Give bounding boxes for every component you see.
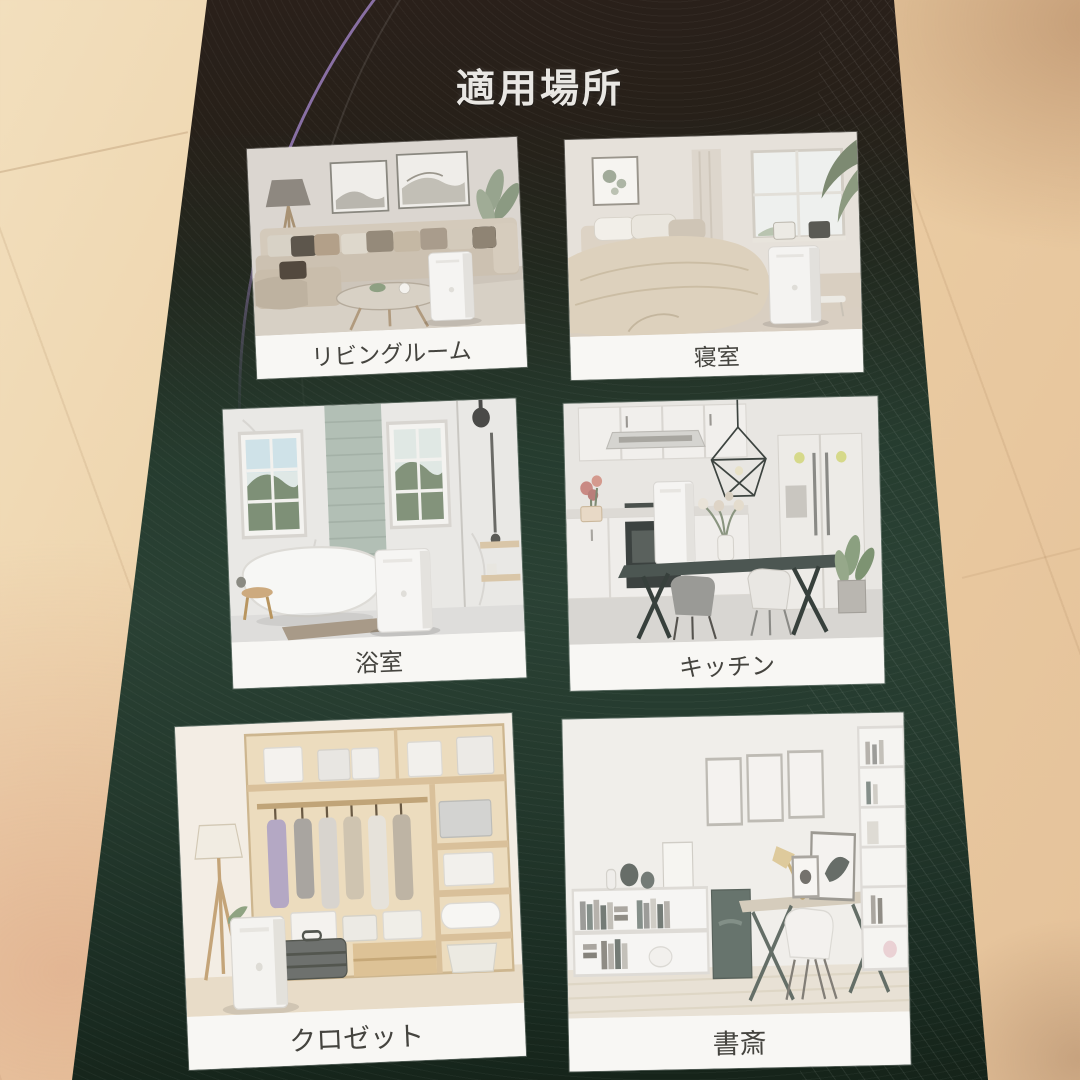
window-right bbox=[387, 421, 450, 527]
card-bathroom: 浴室 bbox=[223, 398, 526, 688]
dehumidifier-product bbox=[367, 548, 441, 638]
study-photo bbox=[562, 712, 909, 1018]
card-label: 寝室 bbox=[570, 329, 863, 380]
floor-plank-seam bbox=[0, 131, 188, 175]
card-bedroom: 寝室 bbox=[565, 132, 864, 380]
kitchen-photo bbox=[564, 396, 884, 645]
floor-plank-seam bbox=[962, 543, 1080, 579]
card-closet: クロゼット bbox=[175, 713, 526, 1070]
living-room-photo bbox=[247, 137, 525, 336]
range-hood bbox=[606, 430, 705, 448]
window bbox=[750, 149, 846, 243]
bedroom-photo bbox=[565, 132, 862, 337]
card-label: 書斎 bbox=[569, 1011, 911, 1071]
bathroom-photo bbox=[223, 398, 525, 642]
card-study: 書斎 bbox=[562, 712, 910, 1071]
washout-overlay bbox=[562, 712, 909, 1018]
wall-art-frame bbox=[592, 157, 638, 205]
card-kitchen: キッチン bbox=[564, 396, 885, 691]
window-left bbox=[239, 431, 305, 538]
closet-photo bbox=[175, 713, 524, 1017]
card-living-room: リビングルーム bbox=[247, 137, 527, 379]
dehumidifier-product bbox=[653, 481, 695, 565]
dehumidifier-product bbox=[760, 245, 828, 328]
card-label: キッチン bbox=[569, 637, 884, 691]
